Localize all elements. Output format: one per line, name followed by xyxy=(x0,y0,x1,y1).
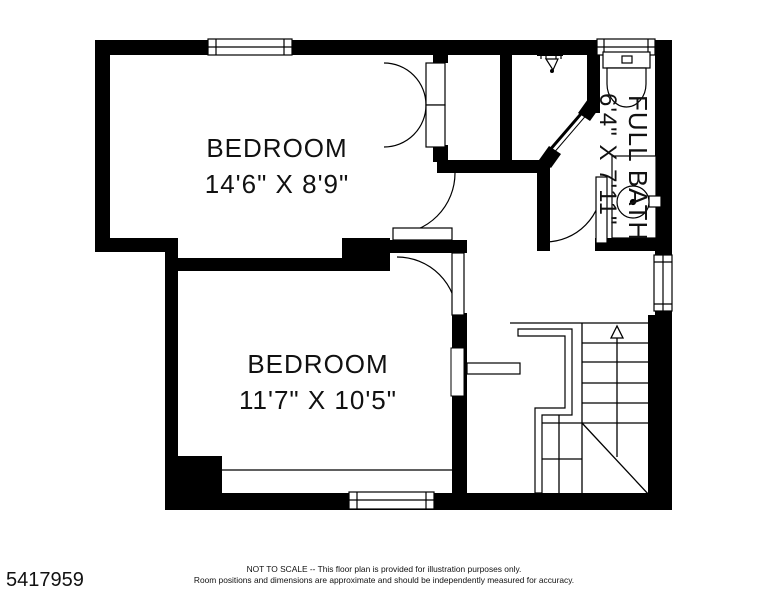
wall-left xyxy=(95,40,110,252)
closet-double-door xyxy=(384,63,445,147)
door-leaf xyxy=(393,228,452,240)
wall-bath-left xyxy=(537,160,550,241)
wall-step-block xyxy=(342,238,390,271)
wall-hall-left xyxy=(452,313,467,498)
bedroom2-door xyxy=(397,253,464,317)
staircase xyxy=(451,323,650,497)
stair-winder-diagonal xyxy=(582,423,650,496)
listing-id: 5417959 xyxy=(6,569,84,591)
door-leaf xyxy=(452,253,464,315)
wall-stair-right xyxy=(648,315,672,500)
door-swing-arc xyxy=(384,105,426,147)
door-swing-arc xyxy=(546,185,602,242)
bedroom2-label: BEDROOM xyxy=(247,349,388,379)
disclaimer-line1: NOT TO SCALE -- This floor plan is provi… xyxy=(247,564,522,574)
window-hall-right xyxy=(654,255,672,311)
wall-closet-right xyxy=(500,53,512,163)
bedroom1-label: BEDROOM xyxy=(206,133,347,163)
wall-closet-shower-bottom xyxy=(437,160,547,173)
floor-plan-canvas: BEDROOM 14'6" X 8'9" BEDROOM 11'7" X 10'… xyxy=(0,0,768,594)
bedroom1-dimensions: 14'6" X 8'9" xyxy=(205,169,349,199)
stair-railing xyxy=(518,329,572,493)
door-swing-arc xyxy=(394,173,455,234)
wall-bedroom1-bottom-right xyxy=(383,240,467,253)
stairs-up-arrow xyxy=(611,326,623,457)
doors xyxy=(384,63,607,317)
floor-plan-page: BEDROOM 14'6" X 8'9" BEDROOM 11'7" X 10'… xyxy=(0,0,768,594)
door-leaf xyxy=(426,63,445,105)
wall-top xyxy=(95,40,672,55)
door-swing-arc xyxy=(397,257,457,317)
door-leaf xyxy=(426,105,445,147)
hall-half-wall xyxy=(467,363,520,374)
window-bedroom1-top xyxy=(208,39,292,55)
door-swing-arc xyxy=(384,63,426,105)
wall-bath-bottom-left xyxy=(537,238,550,251)
fullbath-dimensions: 6'4" X 7'11" xyxy=(594,93,621,226)
disclaimer-line2: Room positions and dimensions are approx… xyxy=(194,575,574,585)
bedroom1-door xyxy=(393,173,455,240)
shower-head-icon xyxy=(537,51,563,73)
window-bedroom2-bottom xyxy=(349,492,434,509)
fullbath-label: FULL BATH xyxy=(623,95,653,241)
wall-opening-marker xyxy=(451,348,464,396)
wall-closet-stub-top xyxy=(433,53,448,63)
bedroom2-dimensions: 11'7" X 10'5" xyxy=(239,385,397,415)
wall-bedroom2-corner-block xyxy=(165,456,222,497)
